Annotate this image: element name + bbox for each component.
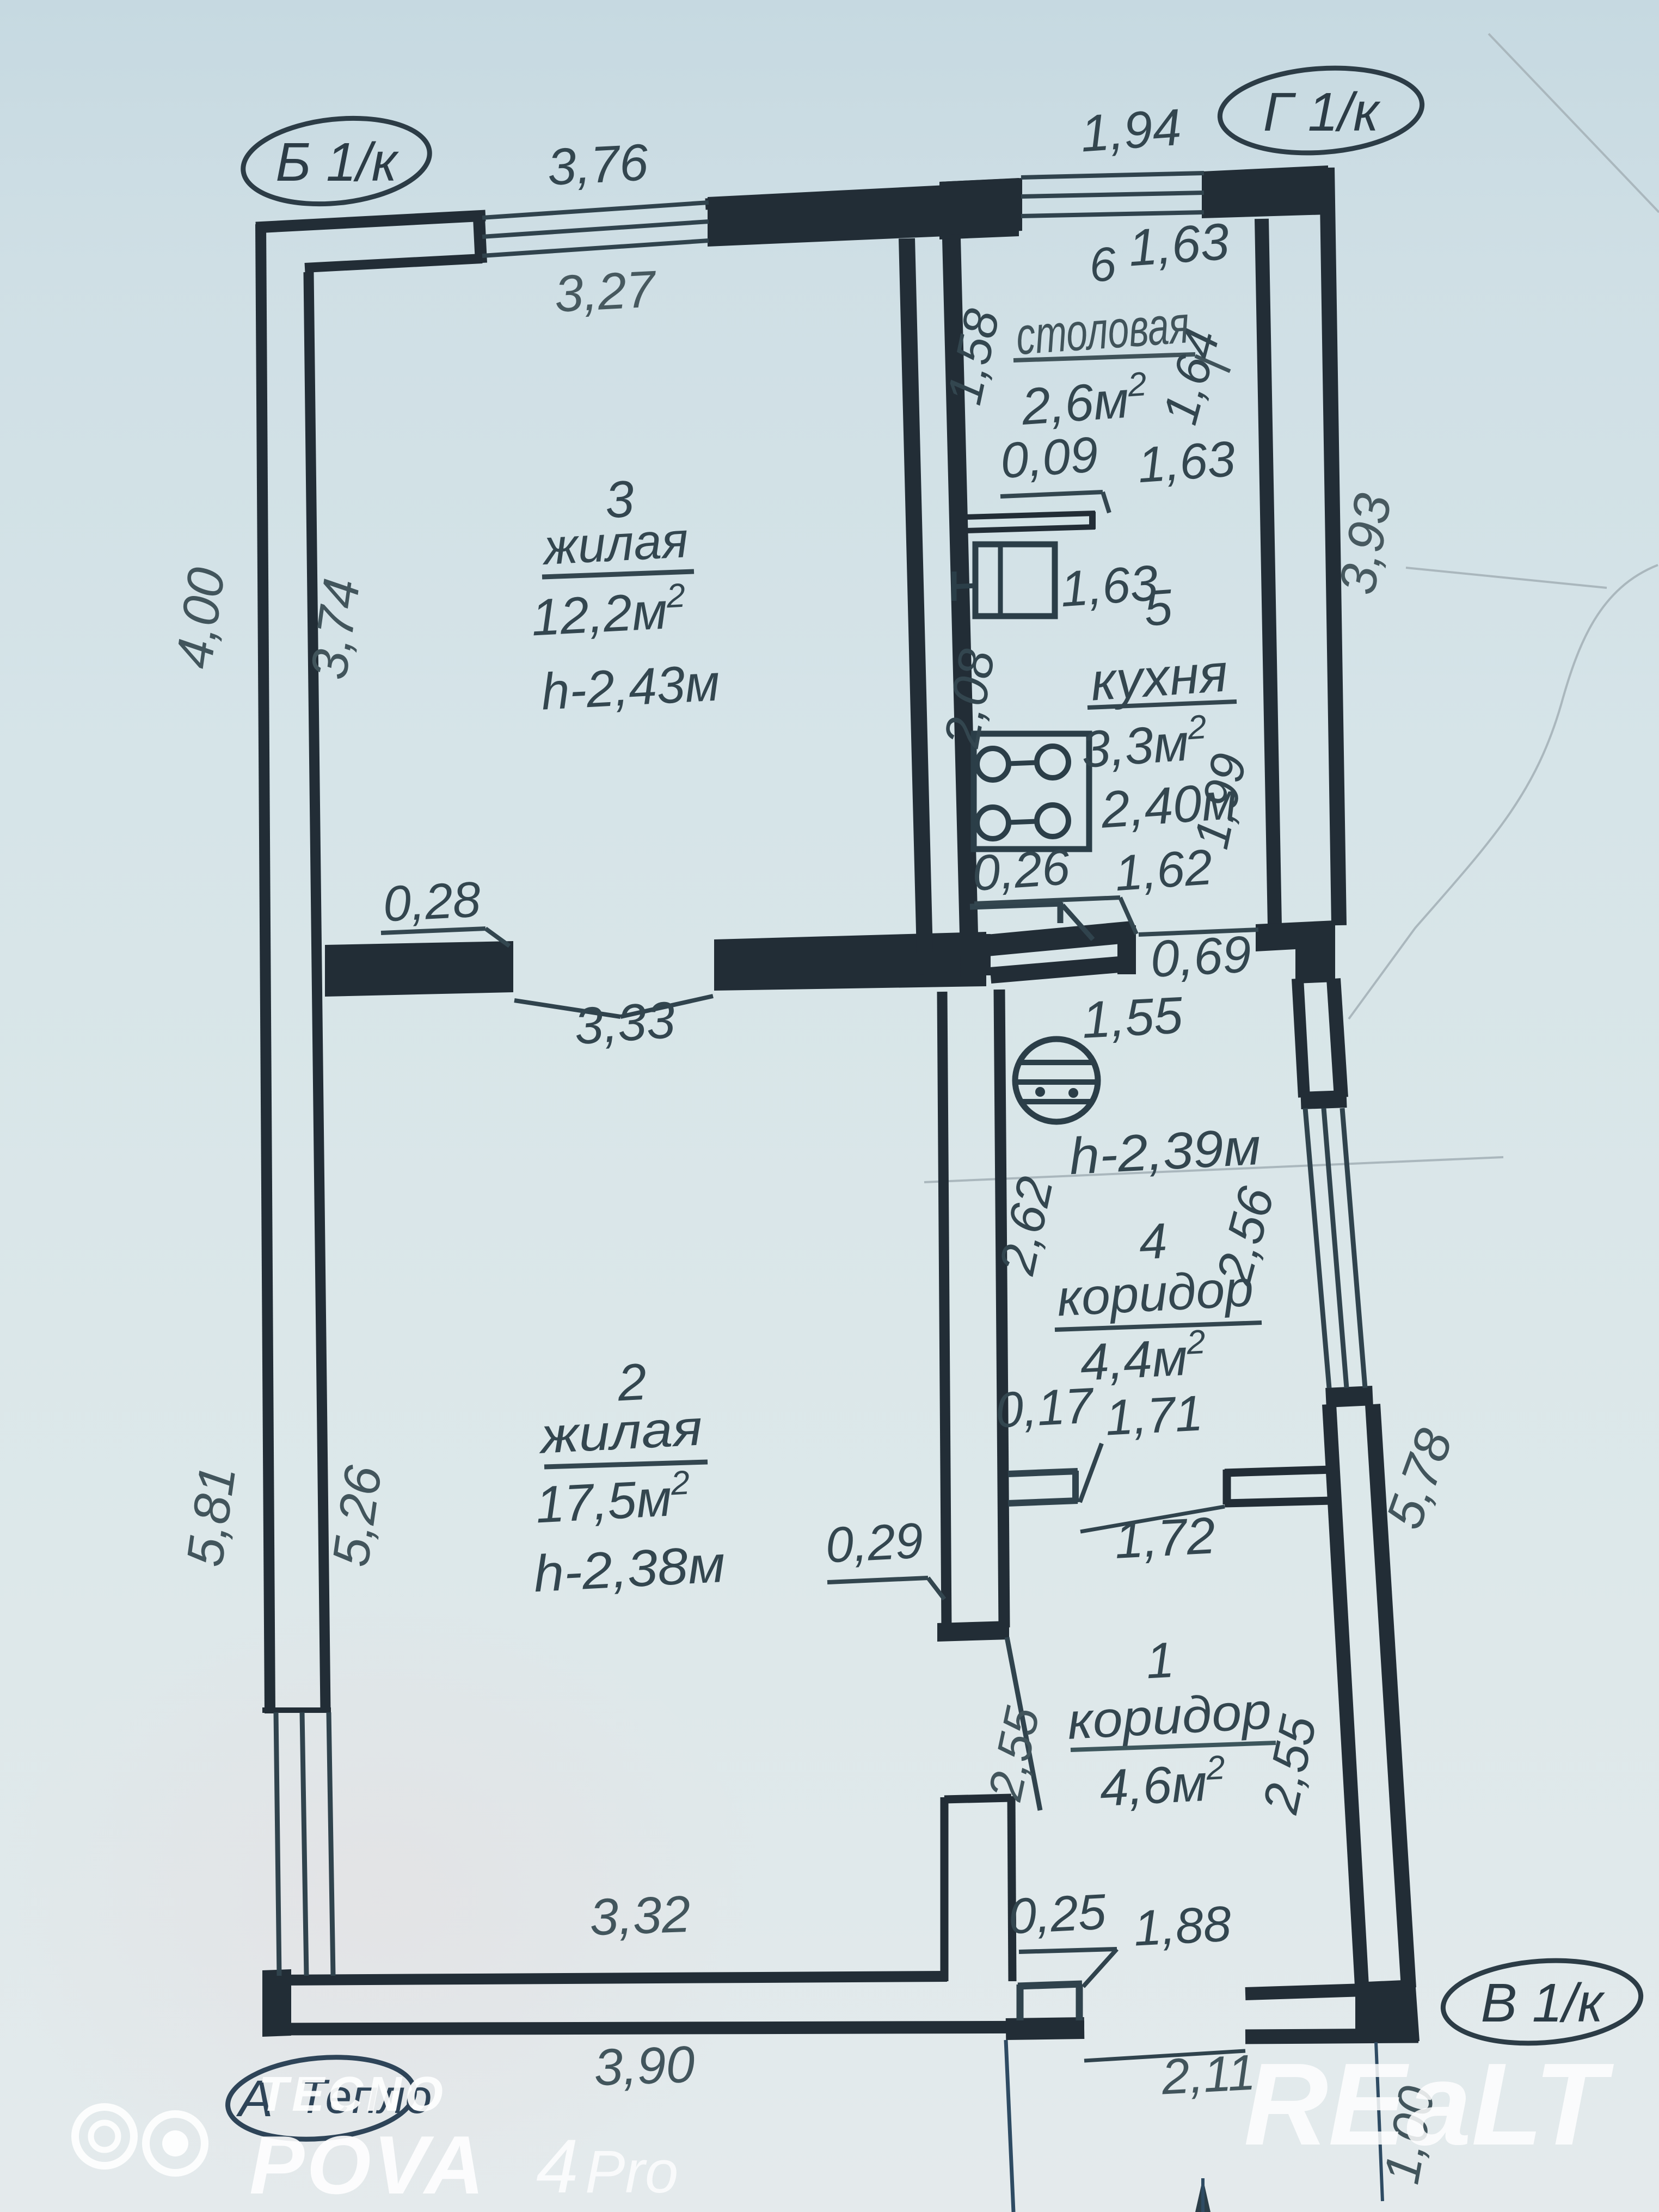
- svg-text:3,90: 3,90: [593, 2036, 696, 2097]
- svg-text:1,55: 1,55: [1080, 986, 1184, 1049]
- svg-text:0,17: 0,17: [994, 1378, 1096, 1438]
- svg-text:4,4м2: 4,4м2: [1078, 1323, 1207, 1392]
- svg-text:4: 4: [1138, 1213, 1168, 1270]
- svg-text:4: 4: [536, 2123, 579, 2209]
- svg-text:2,11: 2,11: [1160, 2045, 1257, 2105]
- svg-text:6: 6: [1087, 236, 1118, 292]
- svg-text:1,63: 1,63: [1127, 213, 1231, 278]
- svg-text:h-2,38м: h-2,38м: [532, 1535, 727, 1603]
- svg-text:3,27: 3,27: [553, 260, 658, 323]
- svg-text:0,09: 0,09: [999, 427, 1100, 489]
- svg-text:h-2,39м: h-2,39м: [1068, 1118, 1262, 1185]
- svg-text:4,6м2: 4,6м2: [1098, 1749, 1227, 1817]
- svg-text:1,88: 1,88: [1132, 1896, 1232, 1956]
- svg-text:коридор: коридор: [1066, 1682, 1273, 1749]
- svg-text:1,71: 1,71: [1104, 1385, 1204, 1446]
- svg-text:В 1/к: В 1/к: [1480, 1973, 1605, 2033]
- svg-text:Б 1/к: Б 1/к: [275, 132, 399, 193]
- svg-text:1: 1: [1145, 1632, 1175, 1689]
- svg-text:0,28: 0,28: [382, 871, 482, 932]
- svg-text:3,32: 3,32: [589, 1885, 691, 1946]
- svg-text:0,25: 0,25: [1007, 1884, 1108, 1944]
- svg-text:TECNO: TECNO: [259, 2067, 446, 2122]
- svg-text:коридор: коридор: [1055, 1259, 1255, 1327]
- svg-text:1,72: 1,72: [1113, 1507, 1216, 1570]
- svg-text:1,94: 1,94: [1079, 99, 1183, 163]
- svg-text:3,76: 3,76: [546, 133, 649, 196]
- svg-text:Pro: Pro: [585, 2139, 678, 2205]
- svg-text:Г 1/к: Г 1/к: [1263, 82, 1381, 143]
- svg-text:POVA: POVA: [249, 2119, 486, 2211]
- svg-text:5: 5: [1142, 579, 1175, 636]
- svg-text:0,29: 0,29: [824, 1513, 924, 1573]
- svg-text:REaLT: REaLT: [1244, 2038, 1614, 2170]
- svg-text:жилая: жилая: [540, 512, 690, 575]
- svg-text:жилая: жилая: [536, 1400, 703, 1464]
- svg-text:0,26: 0,26: [970, 839, 1072, 901]
- svg-text:h-2,43м: h-2,43м: [540, 654, 721, 721]
- svg-text:3,33: 3,33: [573, 991, 677, 1056]
- svg-text:1,62: 1,62: [1113, 839, 1214, 901]
- svg-text:1,63: 1,63: [1136, 431, 1237, 493]
